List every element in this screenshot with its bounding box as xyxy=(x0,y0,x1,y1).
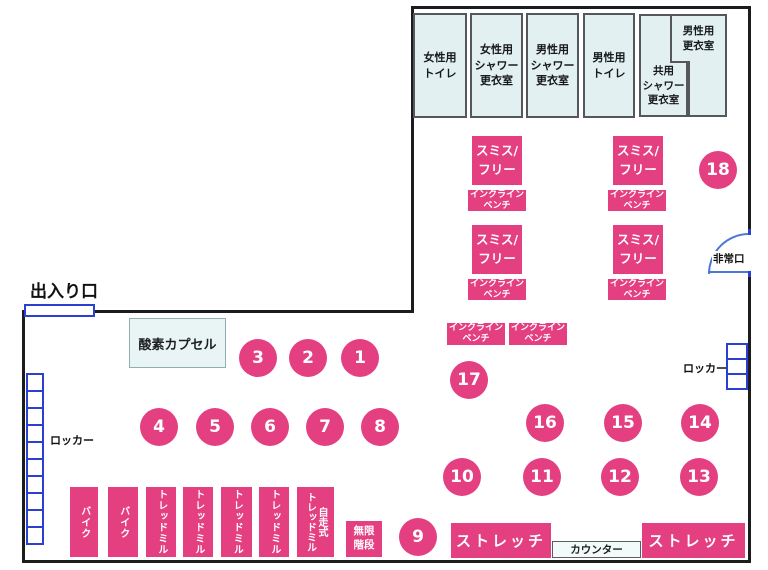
machine-bike-2: バイク xyxy=(108,487,138,557)
entrance-door xyxy=(24,304,95,317)
room-mens-locker: 男性用 更衣室 xyxy=(670,14,727,63)
wall-bottom xyxy=(22,560,751,563)
locker-left-label: ロッカー xyxy=(50,432,94,448)
station-circle-1: 1 xyxy=(341,339,379,377)
station-circle-18: 18 xyxy=(699,151,737,189)
locker-cell xyxy=(726,373,748,390)
wall-right-lower xyxy=(748,276,751,563)
smith-free-rack-4: スミス/ フリー xyxy=(613,225,663,274)
station-circle-11: 11 xyxy=(523,458,561,496)
smith-free-rack-3: スミス/ フリー xyxy=(472,225,522,274)
stretch-area-1: ストレッチ xyxy=(451,523,551,558)
smith-free-rack-1: スミス/ フリー xyxy=(472,136,522,185)
locker-column-left xyxy=(26,373,44,545)
machine-bike-1: バイク xyxy=(70,487,98,557)
room-mens-locker-joint xyxy=(690,60,725,66)
oxygen-capsule-box: 酸素カプセル xyxy=(129,318,226,368)
machine-treadmill-1: トレッドミル xyxy=(146,487,176,557)
room-mens-locker-extension xyxy=(688,63,727,117)
station-circle-2: 2 xyxy=(289,339,327,377)
station-circle-4: 4 xyxy=(140,408,178,446)
station-circle-15: 15 xyxy=(604,404,642,442)
gym-floor-map: 出入り口 女性用 トイレ 女性用 シャワー 更衣室 男性用 シャワー 更衣室 男… xyxy=(0,0,768,570)
station-circle-6: 6 xyxy=(251,408,289,446)
emergency-exit-label: 非常口 xyxy=(712,251,746,266)
emergency-exit-jamb-bottom xyxy=(748,271,751,277)
room-womens-shower-locker: 女性用 シャワー 更衣室 xyxy=(470,13,523,118)
station-circle-13: 13 xyxy=(680,458,718,496)
locker-right-label: ロッカー xyxy=(683,360,727,376)
station-circle-17: 17 xyxy=(450,361,488,399)
station-circle-10: 10 xyxy=(443,458,481,496)
incline-bench-4: インクライン ベンチ xyxy=(608,279,666,300)
station-circle-3: 3 xyxy=(239,339,277,377)
locker-column-right xyxy=(726,343,748,390)
locker-cell xyxy=(26,526,44,545)
station-circle-16: 16 xyxy=(526,404,564,442)
wall-top xyxy=(411,6,751,9)
counter-box: カウンター xyxy=(552,541,641,558)
station-circle-5: 5 xyxy=(196,408,234,446)
infinite-stairs-box: 無限 階段 xyxy=(346,521,382,557)
smith-free-rack-2: スミス/ フリー xyxy=(613,136,663,185)
incline-bench-3: インクライン ベンチ xyxy=(468,279,526,300)
wall-left xyxy=(22,310,25,563)
incline-bench-6: インクライン ベンチ xyxy=(509,323,567,345)
machine-treadmill-3: トレッドミル xyxy=(221,487,252,557)
station-circle-12: 12 xyxy=(601,458,639,496)
machine-treadmill-4: トレッドミル xyxy=(259,487,289,557)
emergency-exit-jamb-top xyxy=(748,229,751,235)
wall-right-upper xyxy=(748,6,751,232)
incline-bench-1: インクライン ベンチ xyxy=(468,190,526,211)
station-circle-14: 14 xyxy=(681,404,719,442)
stretch-area-2: ストレッチ xyxy=(642,523,745,558)
station-circle-7: 7 xyxy=(306,408,344,446)
incline-bench-5: インクライン ベンチ xyxy=(447,323,505,345)
station-circle-9: 9 xyxy=(399,518,437,556)
room-mens-shower-locker: 男性用 シャワー 更衣室 xyxy=(526,13,579,118)
emergency-exit-leaf xyxy=(708,271,750,273)
station-circle-8: 8 xyxy=(361,408,399,446)
machine-self-propelled-treadmill: 自走式 トレッドミル xyxy=(297,487,334,557)
room-womens-toilet: 女性用 トイレ xyxy=(413,13,467,118)
room-mens-toilet: 男性用 トイレ xyxy=(583,13,635,118)
incline-bench-2: インクライン ベンチ xyxy=(608,190,666,211)
machine-treadmill-2: トレッドミル xyxy=(183,487,213,557)
entrance-label: 出入り口 xyxy=(30,277,98,302)
